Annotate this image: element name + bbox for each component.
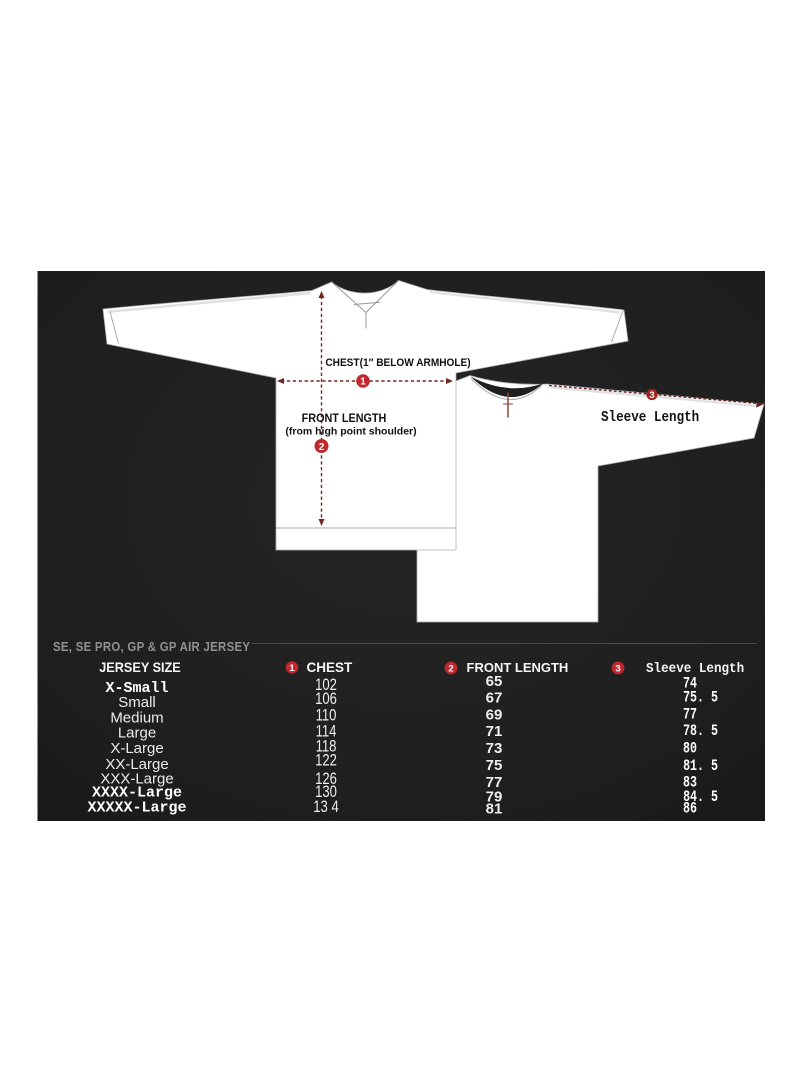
svg-text:Large: Large xyxy=(118,725,156,742)
svg-text:75: 75 xyxy=(486,757,503,774)
svg-text:Small: Small xyxy=(118,694,156,711)
svg-text:80: 80 xyxy=(683,741,697,758)
svg-text:XXXXX-Large: XXXXX-Large xyxy=(87,800,186,817)
svg-text:13 4: 13 4 xyxy=(313,797,338,816)
svg-text:73: 73 xyxy=(486,740,503,757)
svg-text:CHEST(1″ BELOW ARMHOLE): CHEST(1″ BELOW ARMHOLE) xyxy=(325,357,470,369)
svg-text:FRONT LENGTH: FRONT LENGTH xyxy=(467,660,569,675)
svg-text:X-Large: X-Large xyxy=(110,740,163,757)
svg-text:CHEST: CHEST xyxy=(307,660,354,675)
svg-text:FRONT LENGTH: FRONT LENGTH xyxy=(302,413,387,425)
svg-text:77: 77 xyxy=(683,707,697,724)
svg-text:2: 2 xyxy=(448,664,453,675)
svg-text:(from high point shoulder): (from high point shoulder) xyxy=(285,426,416,438)
svg-text:SE, SE PRO, GP & GP AIR JERSEY: SE, SE PRO, GP & GP AIR JERSEY xyxy=(53,640,250,655)
svg-text:122: 122 xyxy=(315,751,337,770)
svg-text:Sleeve Length: Sleeve Length xyxy=(601,409,699,426)
svg-text:69: 69 xyxy=(486,707,503,724)
svg-text:1: 1 xyxy=(360,377,366,388)
svg-text:78. 5: 78. 5 xyxy=(683,724,718,741)
svg-text:75. 5: 75. 5 xyxy=(683,690,718,707)
svg-text:65: 65 xyxy=(486,673,503,690)
svg-text:86: 86 xyxy=(683,801,697,818)
svg-text:Sleeve Length: Sleeve Length xyxy=(646,660,744,676)
svg-text:3: 3 xyxy=(649,390,654,401)
svg-text:81: 81 xyxy=(486,801,503,818)
svg-text:67: 67 xyxy=(486,690,503,707)
svg-text:81. 5: 81. 5 xyxy=(683,759,718,776)
svg-text:1: 1 xyxy=(289,663,295,674)
svg-text:2: 2 xyxy=(319,441,325,453)
svg-text:JERSEY SIZE: JERSEY SIZE xyxy=(99,660,181,675)
svg-text:71: 71 xyxy=(486,723,503,740)
svg-text:3: 3 xyxy=(615,664,620,675)
